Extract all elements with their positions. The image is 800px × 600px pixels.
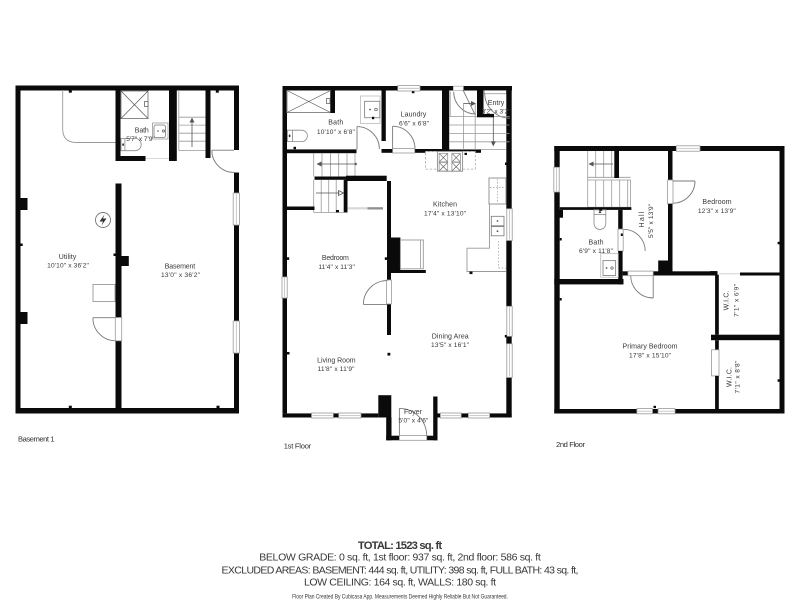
svg-text:Bath: Bath	[589, 239, 604, 246]
svg-text:2nd Floor: 2nd Floor	[556, 440, 585, 449]
svg-text:12'3" x 13'9": 12'3" x 13'9"	[698, 208, 737, 215]
svg-text:17'4" x 13'10": 17'4" x 13'10"	[424, 211, 467, 218]
svg-text:11'8" x 11'9": 11'8" x 11'9"	[318, 366, 356, 373]
svg-text:10'10" x 6'8": 10'10" x 6'8"	[317, 129, 356, 136]
svg-text:1st Floor: 1st Floor	[284, 441, 312, 450]
svg-text:Laundry: Laundry	[401, 112, 427, 119]
svg-text:13'0" x 36'2": 13'0" x 36'2"	[161, 272, 201, 279]
svg-text:Basement 1: Basement 1	[18, 435, 55, 444]
svg-text:5'0" x 4'6": 5'0" x 4'6"	[398, 417, 429, 424]
svg-text:EXCLUDED AREAS: BASEMENT: 444: EXCLUDED AREAS: BASEMENT: 444 sq. ft, UT…	[222, 565, 579, 577]
svg-text:7'1" x 8'8": 7'1" x 8'8"	[734, 360, 741, 394]
svg-text:Dining Area: Dining Area	[432, 334, 469, 341]
svg-text:W.I.C.: W.I.C.	[724, 290, 731, 310]
svg-text:Basement: Basement	[165, 264, 196, 271]
svg-text:11'4" x 11'3": 11'4" x 11'3"	[318, 264, 355, 271]
svg-text:5'7" x 7'9": 5'7" x 7'9"	[126, 136, 155, 143]
svg-text:BELOW GRADE: 0 sq. ft, 1st flo: BELOW GRADE: 0 sq. ft, 1st floor: 937 sq…	[259, 552, 541, 564]
svg-text:6'9" x 11'8": 6'9" x 11'8"	[579, 248, 614, 255]
svg-text:Living Room: Living Room	[317, 358, 356, 365]
svg-text:Floor Plan Created By Cubicasa: Floor Plan Created By Cubicasa App. Meas…	[292, 593, 508, 600]
svg-text:Hall: Hall	[639, 211, 646, 227]
svg-text:17'8" x 15'10": 17'8" x 15'10"	[629, 352, 672, 359]
svg-text:Primary Bedroom: Primary Bedroom	[623, 343, 678, 350]
svg-text:Utility: Utility	[59, 254, 77, 261]
svg-text:7'1" x 6'9": 7'1" x 6'9"	[733, 283, 740, 317]
svg-text:W.I.C.: W.I.C.	[726, 367, 733, 387]
svg-text:Bedroom: Bedroom	[322, 255, 349, 262]
svg-text:Entry: Entry	[488, 100, 505, 107]
svg-text:LOW CEILING: 164 sq. ft, WALLS: LOW CEILING: 164 sq. ft, WALLS: 180 sq. …	[304, 576, 496, 588]
svg-text:10'10" x 36'2": 10'10" x 36'2"	[47, 263, 89, 270]
svg-text:13'5" x 16'1": 13'5" x 16'1"	[431, 342, 470, 349]
svg-text:Bedroom: Bedroom	[702, 199, 731, 206]
svg-text:6'6" x 6'8": 6'6" x 6'8"	[399, 120, 430, 127]
svg-text:Bath: Bath	[135, 127, 149, 134]
svg-text:Kitchen: Kitchen	[433, 202, 457, 209]
svg-text:Foyer: Foyer	[404, 409, 423, 416]
svg-text:Bath: Bath	[328, 120, 343, 127]
svg-text:TOTAL: 1523 sq. ft: TOTAL: 1523 sq. ft	[358, 540, 442, 552]
svg-text:5'5" x 13'9": 5'5" x 13'9"	[648, 203, 655, 238]
